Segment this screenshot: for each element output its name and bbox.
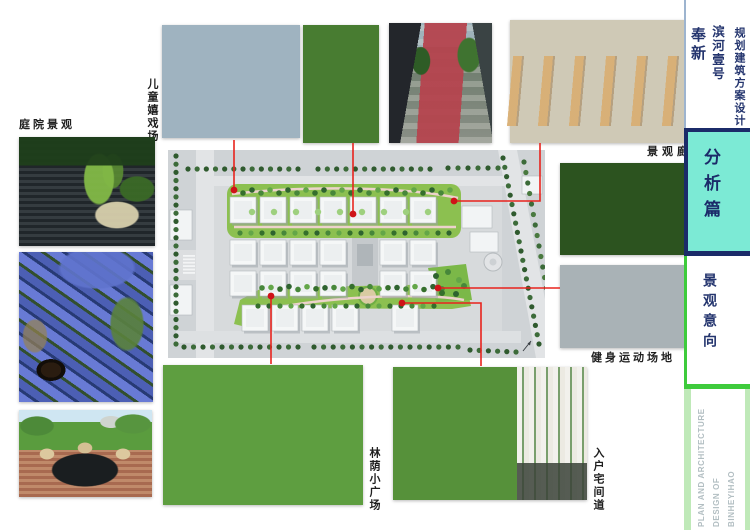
topic-label: 景观意向	[699, 273, 719, 353]
footer-left-strip	[684, 389, 691, 530]
site-plan	[168, 150, 545, 358]
photo-red-paved-path	[389, 23, 492, 143]
footer-panel: PLAN AND ARCHITECTURE DESIGN OF BINHEYIH…	[684, 389, 750, 530]
photo-exercise-frame	[560, 163, 686, 255]
footer-rotated-text: PLAN AND ARCHITECTURE DESIGN OF BINHEYIH…	[694, 389, 748, 530]
analysis-section-badge: 分析篇	[684, 132, 750, 256]
footer-line-2: DESIGN OF	[709, 389, 724, 527]
caption-courtyard: 庭院景观	[19, 116, 75, 132]
analysis-badge-label: 分析篇	[698, 148, 723, 226]
photo-tree-boardwalk	[303, 25, 379, 143]
footer-line-1: PLAN AND ARCHITECTURE	[694, 389, 709, 527]
presentation-board: 庭院景观 儿童嬉戏场 景观廊 健身运动场地 林荫小广场 入户宅间道	[0, 0, 750, 530]
caption-entry-lane: 入户宅间道	[590, 447, 606, 512]
photo-fountain	[19, 410, 152, 497]
photo-courtyard-landscape	[19, 137, 155, 246]
photo-fitness-equipment	[560, 265, 686, 348]
photo-night-garden	[19, 252, 153, 402]
caption-shaded-plaza: 林荫小广场	[366, 447, 382, 512]
photo-entry-lane-courtyard	[393, 367, 587, 500]
project-subname: 滨河壹号	[708, 25, 727, 81]
topic-section: 景观意向	[684, 256, 750, 389]
doc-type-title: 规划建筑方案设计	[731, 27, 747, 127]
footer-line-3: BINHEYIHAO	[724, 389, 739, 527]
photo-shaded-plaza	[163, 365, 363, 505]
project-name: 奉新	[688, 27, 709, 63]
site-plan-container	[168, 150, 545, 358]
titleblock-panel: 规划建筑方案设计 滨河壹号 奉新	[684, 0, 750, 128]
photo-children-playground	[162, 25, 300, 138]
photo-landscape-gallery-pergola	[510, 20, 686, 143]
caption-fitness-ground: 健身运动场地	[591, 349, 675, 365]
caption-children-playground: 儿童嬉戏场	[144, 78, 160, 143]
